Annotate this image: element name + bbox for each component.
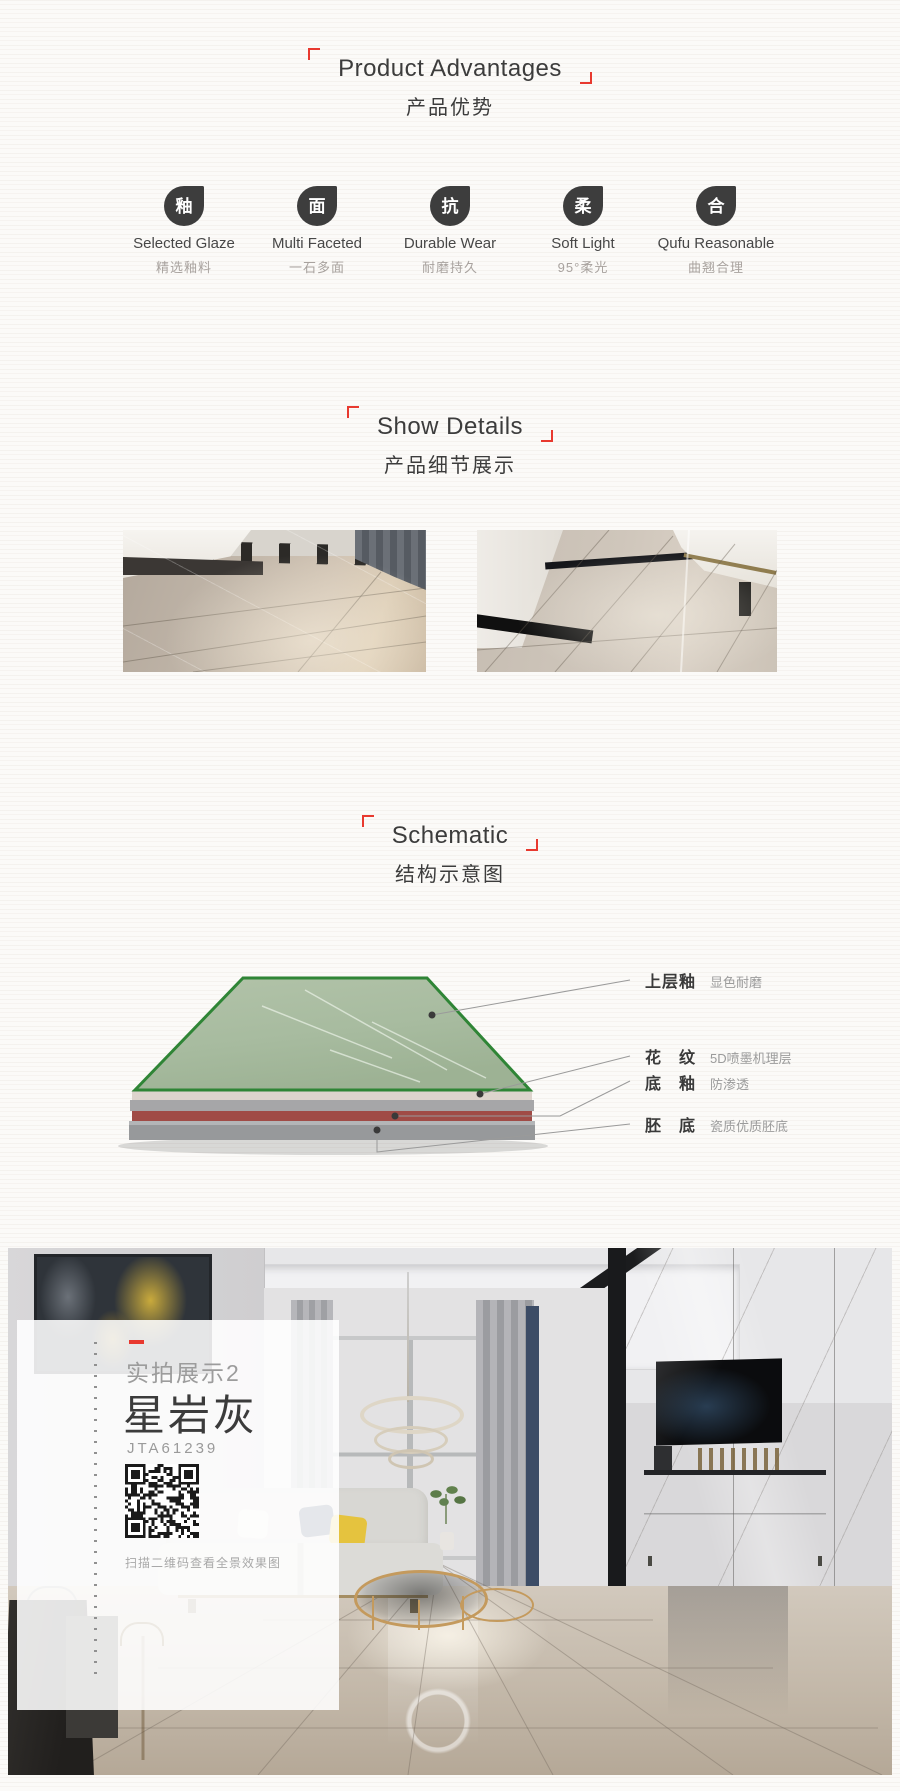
wear-resist-icon: 抗	[430, 186, 470, 226]
layer-label-row: 花 纹5D喷墨机理层	[645, 1044, 792, 1068]
coffee-table-legs	[370, 1596, 466, 1630]
advantage-label-zh: 一石多面	[253, 257, 381, 276]
schematic-header: Schematic 结构示意图	[0, 822, 900, 887]
dotted-line-decor	[94, 1342, 97, 1680]
advantages-title-en: Product Advantages	[338, 55, 562, 83]
advantage-label-zh: 曲翘合理	[652, 257, 780, 276]
layer-name: 底 釉	[645, 1076, 696, 1093]
details-header: Show Details 产品细节展示	[0, 413, 900, 478]
advantages-title-text: Product Advantages	[338, 55, 562, 82]
layer-desc: 显色耐磨	[710, 975, 762, 990]
nesting-table	[460, 1588, 534, 1622]
flatness-icon: 合	[696, 186, 736, 226]
advantage-label-en: Multi Faceted	[253, 235, 381, 252]
advantage-label-zh: 耐磨持久	[386, 257, 514, 276]
red-corner-bracket-icon	[541, 430, 553, 442]
advantage-items: 釉 Selected Glaze 精选釉料 面 Multi Faceted 一石…	[120, 186, 780, 276]
advantage-label-en: Soft Light	[519, 235, 647, 252]
details-title-zh: 产品细节展示	[0, 449, 900, 478]
red-dash-icon	[129, 1340, 144, 1344]
qr-caption: 扫描二维码查看全景效果图	[125, 1554, 281, 1571]
layer-name: 胚 底	[645, 1118, 696, 1135]
detail-photo-bedroom-floor	[123, 530, 426, 672]
advantage-item: 抗 Durable Wear 耐磨持久	[386, 186, 514, 276]
product-detail-page: Product Advantages 产品优势 釉 Selected Glaze…	[0, 0, 900, 1791]
advantage-item: 釉 Selected Glaze 精选釉料	[120, 186, 248, 276]
red-corner-bracket-icon	[362, 815, 374, 827]
advantages-title-zh: 产品优势	[0, 91, 900, 120]
layer-label-row: 胚 底瓷质优质胚底	[645, 1112, 788, 1136]
schematic-title-text: Schematic	[392, 822, 509, 849]
layer-name: 上层釉	[645, 974, 696, 991]
advantage-item: 柔 Soft Light 95°柔光	[519, 186, 647, 276]
red-corner-bracket-icon	[526, 839, 538, 851]
qr-code	[125, 1464, 199, 1538]
plant	[426, 1486, 466, 1534]
advantage-item: 合 Qufu Reasonable 曲翘合理	[652, 186, 780, 276]
product-name: 星岩灰	[123, 1382, 258, 1443]
soft-light-icon: 柔	[563, 186, 603, 226]
advantage-label-zh: 95°柔光	[519, 257, 647, 276]
product-info-card: 实拍展示2 星岩灰 JTA61239 扫描二维码查看全景效果图	[17, 1320, 339, 1710]
advantage-item: 面 Multi Faceted 一石多面	[253, 186, 381, 276]
layer-name: 花 纹	[645, 1050, 696, 1067]
vase	[440, 1532, 454, 1550]
advantage-label-en: Selected Glaze	[120, 235, 248, 252]
layer-label-row: 底 釉防渗透	[645, 1070, 749, 1094]
red-corner-bracket-icon	[308, 48, 320, 60]
layer-desc: 瓷质优质胚底	[710, 1119, 788, 1134]
floor-gloss	[477, 530, 777, 672]
surface-icon: 面	[297, 186, 337, 226]
details-title-text: Show Details	[377, 413, 523, 440]
schematic-title-zh: 结构示意图	[0, 858, 900, 887]
detail-photo-doorway-floor	[477, 530, 777, 672]
layer-desc: 5D喷墨机理层	[710, 1051, 792, 1066]
advantages-header: Product Advantages 产品优势	[0, 55, 900, 120]
details-title-en: Show Details	[377, 413, 523, 441]
layer-desc: 防渗透	[710, 1077, 749, 1092]
advantage-label-zh: 精选釉料	[120, 257, 248, 276]
product-model-code: JTA61239	[127, 1440, 218, 1457]
advantage-label-en: Durable Wear	[386, 235, 514, 252]
floor-gloss	[123, 530, 426, 672]
red-corner-bracket-icon	[347, 406, 359, 418]
schematic-title-en: Schematic	[392, 822, 509, 850]
glaze-icon: 釉	[164, 186, 204, 226]
red-corner-bracket-icon	[580, 72, 592, 84]
advantage-label-en: Qufu Reasonable	[652, 235, 780, 252]
layer-label-row: 上层釉显色耐磨	[645, 968, 762, 992]
showcase-photo-frame: 实拍展示2 星岩灰 JTA61239 扫描二维码查看全景效果图	[8, 1248, 892, 1775]
